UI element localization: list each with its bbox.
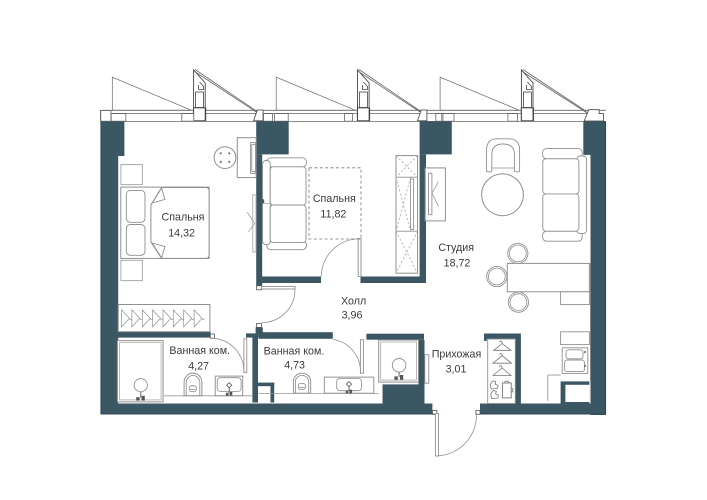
svg-text:Холл: Холл [341,295,366,307]
svg-text:Ванная ком.: Ванная ком. [264,346,325,358]
svg-text:3,01: 3,01 [446,363,467,375]
svg-text:4,73: 4,73 [284,360,305,372]
svg-text:Спальня: Спальня [313,193,356,205]
svg-text:4,27: 4,27 [188,360,209,372]
svg-text:11,82: 11,82 [320,209,346,221]
svg-text:18,72: 18,72 [444,258,471,270]
svg-text:14,32: 14,32 [168,228,195,240]
svg-text:Ванная ком.: Ванная ком. [169,345,230,357]
svg-text:Прихожая: Прихожая [432,349,482,361]
svg-text:3,96: 3,96 [342,310,363,322]
svg-text:Спальня: Спальня [162,212,205,224]
svg-text:Студия: Студия [438,242,474,254]
